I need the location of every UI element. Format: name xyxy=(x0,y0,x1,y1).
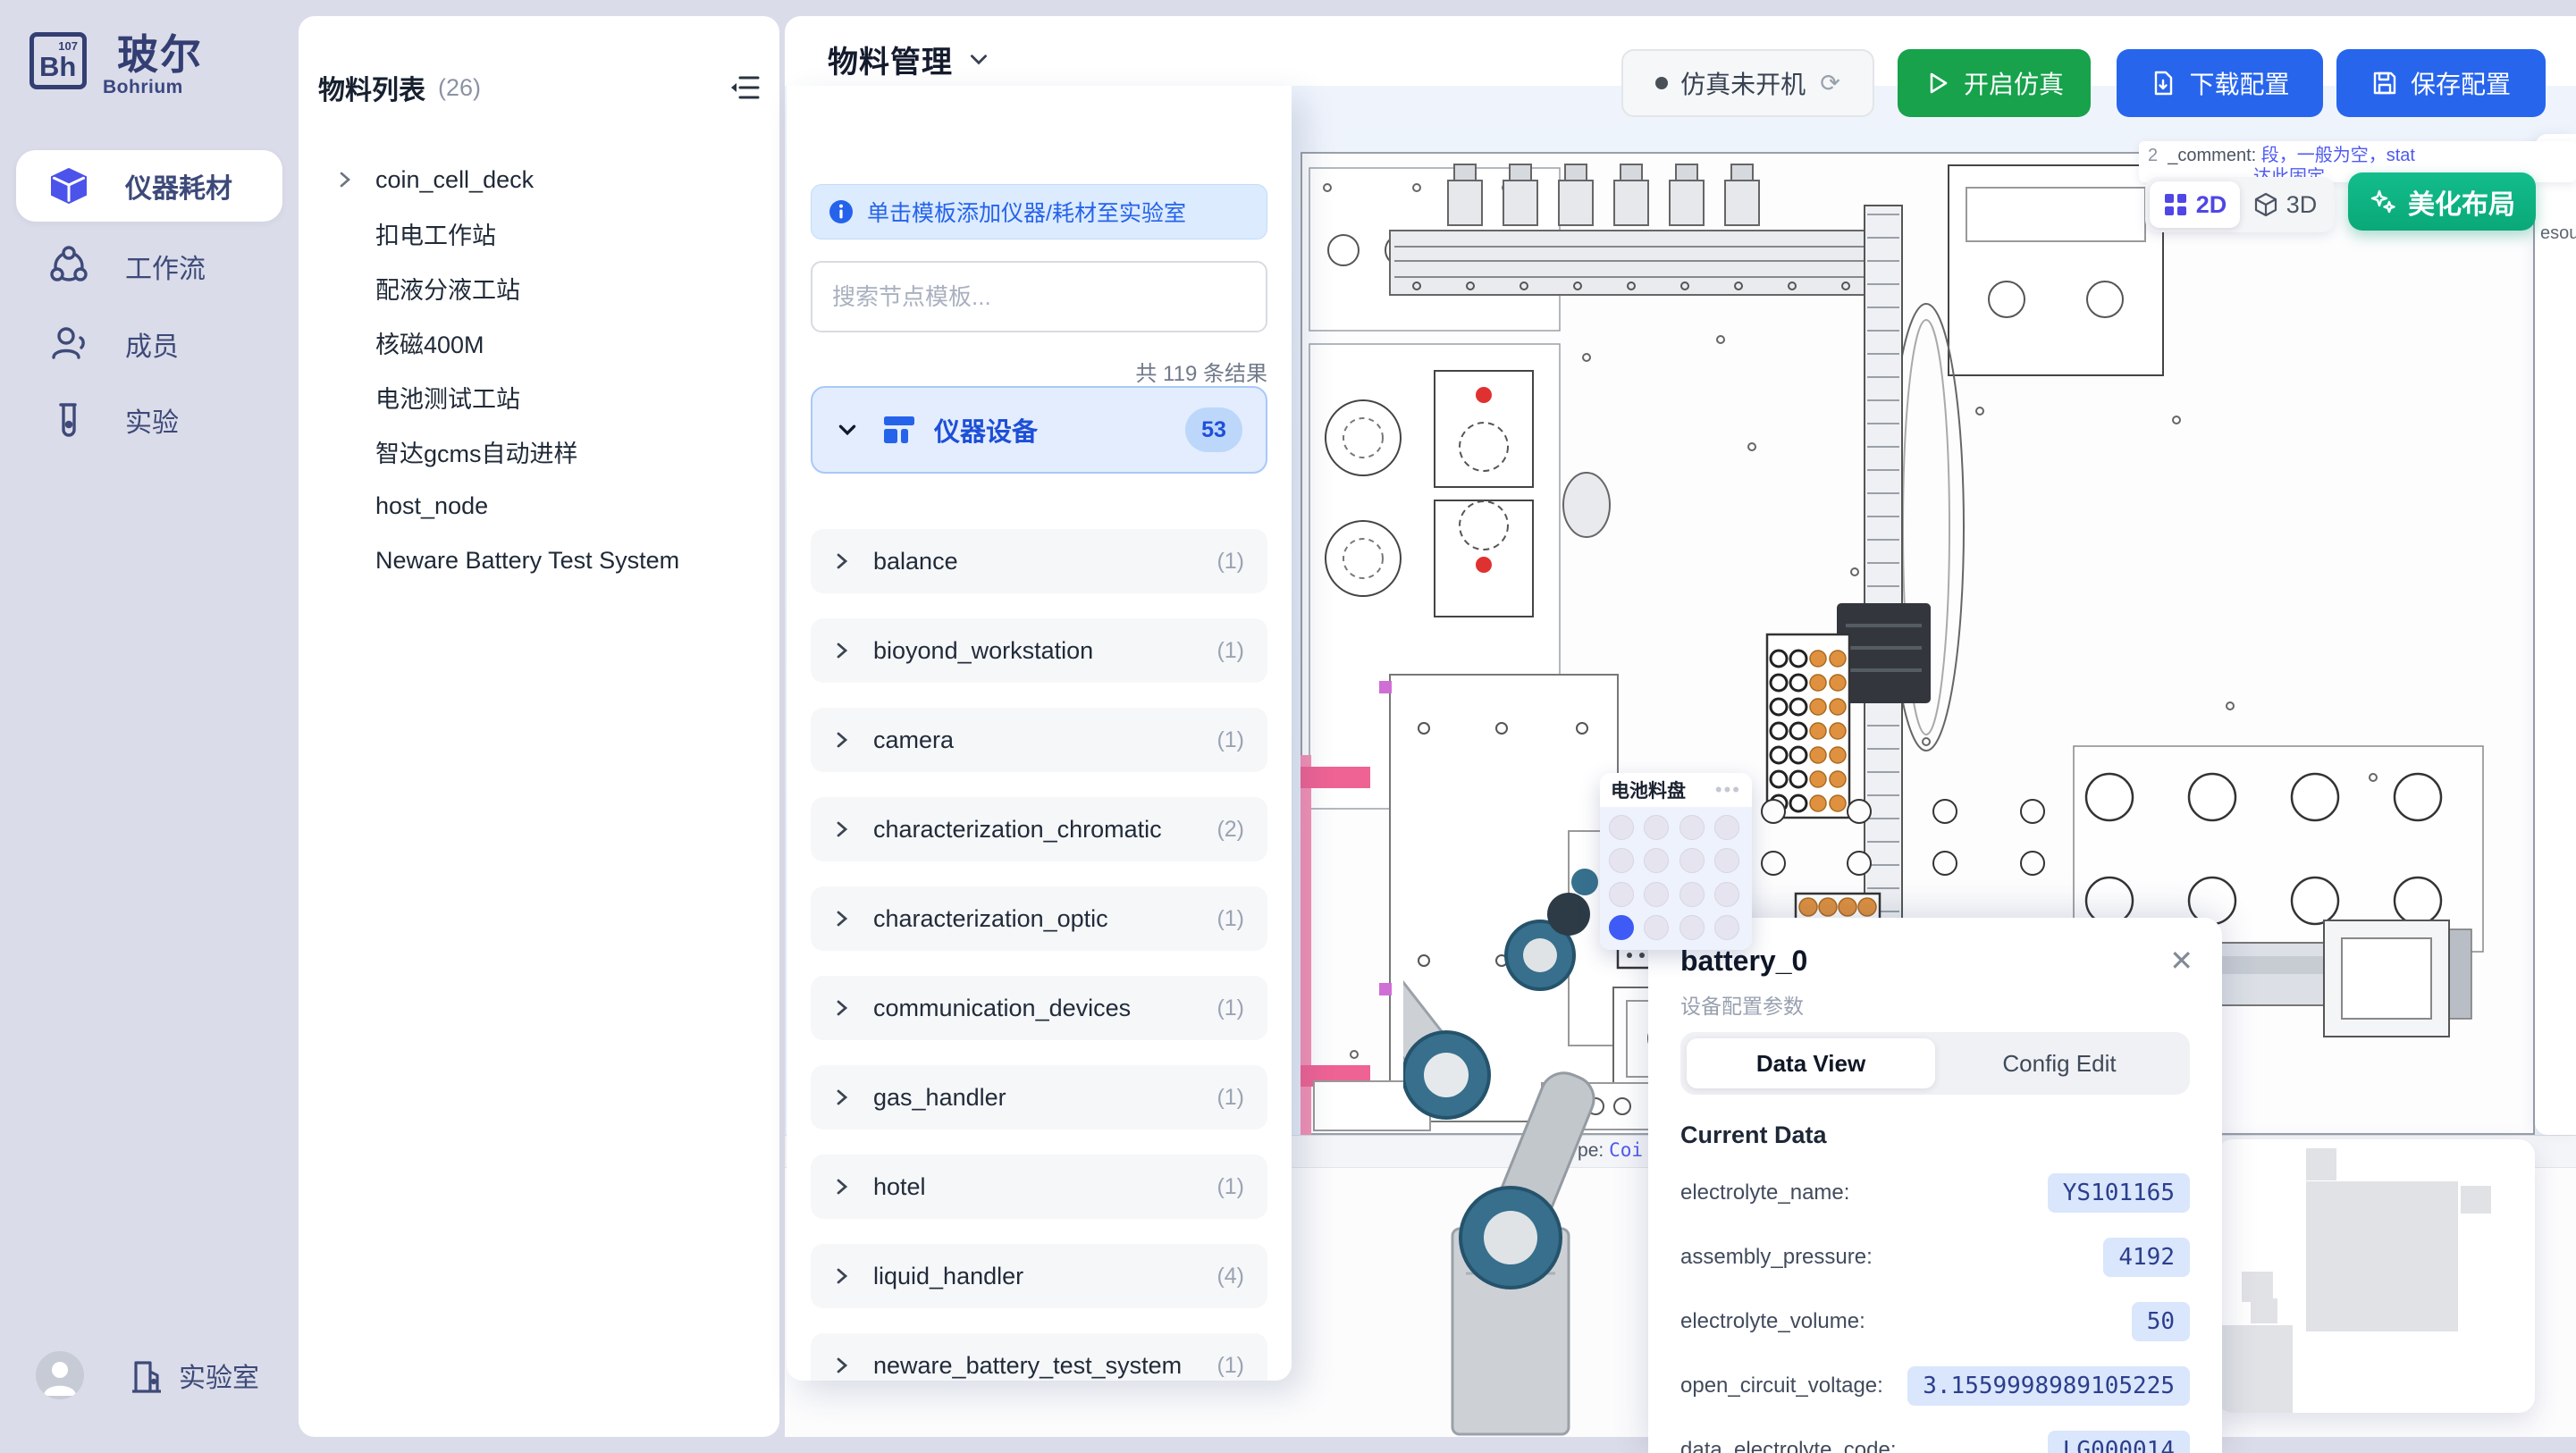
simulation-status-pill[interactable]: 仿真未开机 ⟳ xyxy=(1621,49,1874,117)
chevron-right-icon xyxy=(834,819,850,839)
data-row: assembly_pressure: 4192 xyxy=(1680,1225,2190,1289)
data-row: open_circuit_voltage: 3.1559998989105225 xyxy=(1680,1354,2190,1418)
category-count-badge: 53 xyxy=(1185,407,1242,452)
result-count: 共 119 条结果 xyxy=(1135,356,1267,387)
members-icon xyxy=(48,323,89,365)
sidebar-item-instruments[interactable]: 仪器耗材 xyxy=(16,150,282,222)
tray-slot[interactable] xyxy=(1644,815,1669,840)
battery-detail-panel: battery_0 设备配置参数 ✕ Data View Config Edit… xyxy=(1648,918,2222,1453)
template-item[interactable]: bioyond_workstation (1) xyxy=(811,618,1267,683)
download-file-icon xyxy=(2150,70,2176,97)
lab-link[interactable]: 实验室 xyxy=(130,1356,259,1395)
template-item[interactable]: balance (1) xyxy=(811,529,1267,593)
search-input[interactable] xyxy=(811,261,1267,332)
data-row: data_electrolyte_code: LG000014 xyxy=(1680,1418,2190,1453)
view-mode-toggle: 2D 3D xyxy=(2145,177,2335,232)
play-icon xyxy=(1924,70,1951,97)
tray-slot-grid[interactable] xyxy=(1600,807,1752,950)
logo-subtitle: Bohrium xyxy=(103,77,203,98)
current-data-heading: Current Data xyxy=(1680,1121,1827,1149)
material-item[interactable]: 电池测试工站 xyxy=(375,374,520,419)
template-item[interactable]: liquid_handler (4) xyxy=(811,1244,1267,1308)
grid-2d-icon xyxy=(2163,192,2188,217)
workflow-icon xyxy=(48,246,89,287)
materials-count: (26) xyxy=(438,74,481,102)
right-side-panel-edge: esou xyxy=(2535,134,2576,1135)
close-icon[interactable]: ✕ xyxy=(2169,946,2193,975)
tray-slot[interactable] xyxy=(1714,882,1739,907)
cube-icon xyxy=(48,165,89,206)
battery-panel-subtitle: 设备配置参数 xyxy=(1680,989,1804,1020)
robot-arm xyxy=(1403,853,1609,1437)
battery-data-rows: electrolyte_name: YS101165 assembly_pres… xyxy=(1680,1161,2190,1453)
table-columns-icon xyxy=(882,415,916,445)
refresh-icon[interactable]: ⟳ xyxy=(1820,70,1840,97)
minimap[interactable] xyxy=(2217,1139,2535,1413)
save-icon xyxy=(2371,70,2398,97)
tray-slot[interactable] xyxy=(1679,848,1705,873)
toggle-3d-button[interactable]: 3D xyxy=(2240,181,2330,228)
materials-list-panel: 物料列表 (26) coin_cell_deck 扣电工作站 配液分液工站 核磁… xyxy=(299,16,779,1437)
chevron-right-icon xyxy=(834,998,850,1018)
app-logo[interactable]: Bh 107 玻尔 Bohrium xyxy=(29,32,203,98)
material-item[interactable]: Neware Battery Test System xyxy=(375,538,679,583)
material-item[interactable]: 智达gcms自动进样 xyxy=(375,429,578,474)
template-panel: 单击模板添加仪器/耗材至实验室 共 119 条结果 仪器设备 53 balanc… xyxy=(787,86,1292,1381)
bohrium-logo-icon: Bh 107 xyxy=(29,32,87,89)
tray-slot[interactable] xyxy=(1609,848,1634,873)
chevron-right-icon xyxy=(834,1266,850,1286)
chevron-right-icon xyxy=(336,171,354,189)
tray-slot[interactable] xyxy=(1609,815,1634,840)
data-row: electrolyte_name: YS101165 xyxy=(1680,1161,2190,1225)
app-root: type: Coi esou xyxy=(0,0,2576,1453)
material-item-coin-cell-deck[interactable]: coin_cell_deck xyxy=(336,157,534,202)
chevron-right-icon xyxy=(834,1356,850,1375)
page-title: 物料管理 xyxy=(828,38,953,81)
template-item[interactable]: camera (1) xyxy=(811,708,1267,772)
tray-slot[interactable] xyxy=(1714,848,1739,873)
tray-slot[interactable] xyxy=(1644,915,1669,940)
sidebar-item-workflow[interactable]: 工作流 xyxy=(16,231,282,302)
tab-config-edit[interactable]: Config Edit xyxy=(1935,1038,2184,1088)
beautify-layout-button[interactable]: 美化布局 xyxy=(2348,172,2536,231)
simulation-status-text: 仿真未开机 xyxy=(1680,65,1806,101)
material-item[interactable]: 扣电工作站 xyxy=(375,211,496,256)
chevron-right-icon xyxy=(834,1177,850,1197)
tray-slot[interactable] xyxy=(1714,915,1739,940)
material-item[interactable]: host_node xyxy=(375,483,488,528)
chevron-right-icon xyxy=(834,641,850,660)
person-icon xyxy=(36,1351,84,1399)
material-item[interactable]: 配液分液工站 xyxy=(375,265,520,310)
template-item[interactable]: characterization_chromatic (2) xyxy=(811,797,1267,861)
test-tube-icon xyxy=(48,399,89,441)
category-instruments[interactable]: 仪器设备 53 xyxy=(811,386,1267,474)
chevron-down-icon xyxy=(836,418,859,441)
sidebar: Bh 107 玻尔 Bohrium 仪器耗材 工作流 成员 实验 xyxy=(0,0,295,1453)
tray-slot[interactable] xyxy=(1679,815,1705,840)
template-item[interactable]: characterization_optic (1) xyxy=(811,886,1267,951)
materials-title: 物料列表 xyxy=(318,68,425,107)
download-config-button[interactable]: 下载配置 xyxy=(2117,49,2323,117)
sparkles-icon xyxy=(2369,188,2397,216)
tab-data-view[interactable]: Data View xyxy=(1687,1038,1935,1088)
sidebar-item-experiments[interactable]: 实验 xyxy=(16,384,282,456)
sidebar-item-members[interactable]: 成员 xyxy=(16,308,282,380)
tray-slot[interactable] xyxy=(1609,882,1634,907)
logo-title: 玻尔 xyxy=(117,32,203,77)
chevron-right-icon xyxy=(834,730,850,750)
material-item[interactable]: 核磁400M xyxy=(375,320,484,365)
chevron-down-icon xyxy=(967,47,990,71)
chevron-right-icon xyxy=(834,1088,850,1107)
chevron-right-icon xyxy=(834,551,850,571)
info-icon xyxy=(828,198,854,225)
tray-slot[interactable] xyxy=(1679,915,1705,940)
save-config-button[interactable]: 保存配置 xyxy=(2336,49,2546,117)
battery-tabs: Data View Config Edit xyxy=(1680,1032,2190,1095)
battery-tray-popup[interactable]: 电池料盘 ••• xyxy=(1600,773,1752,950)
data-row: electrolyte_volume: 50 xyxy=(1680,1289,2190,1354)
cube-3d-icon xyxy=(2253,192,2278,217)
tray-slot[interactable] xyxy=(1644,882,1669,907)
tray-slot[interactable] xyxy=(1679,882,1705,907)
template-item[interactable]: neware_battery_test_system (1) xyxy=(811,1333,1267,1381)
tray-slot[interactable] xyxy=(1644,848,1669,873)
user-avatar[interactable] xyxy=(36,1351,84,1399)
template-item[interactable]: communication_devices (1) xyxy=(811,976,1267,1040)
more-options-icon[interactable]: ••• xyxy=(1715,778,1741,802)
template-item[interactable]: gas_handler (1) xyxy=(811,1065,1267,1130)
collapse-list-icon[interactable] xyxy=(729,73,762,102)
building-icon xyxy=(130,1357,163,1393)
tray-title: 电池料盘 xyxy=(1611,777,1686,803)
tray-slot-selected[interactable] xyxy=(1609,915,1634,940)
tray-slot[interactable] xyxy=(1714,815,1739,840)
toggle-2d-button[interactable]: 2D xyxy=(2150,181,2240,228)
page-title-dropdown[interactable]: 物料管理 xyxy=(828,38,990,80)
chevron-right-icon xyxy=(834,909,850,928)
status-dot-icon xyxy=(1655,77,1668,89)
add-template-banner: 单击模板添加仪器/耗材至实验室 xyxy=(811,184,1267,239)
start-simulation-button[interactable]: 开启仿真 xyxy=(1898,49,2091,117)
resources-fragment: esou xyxy=(2540,223,2576,244)
template-item[interactable]: hotel (1) xyxy=(811,1155,1267,1219)
